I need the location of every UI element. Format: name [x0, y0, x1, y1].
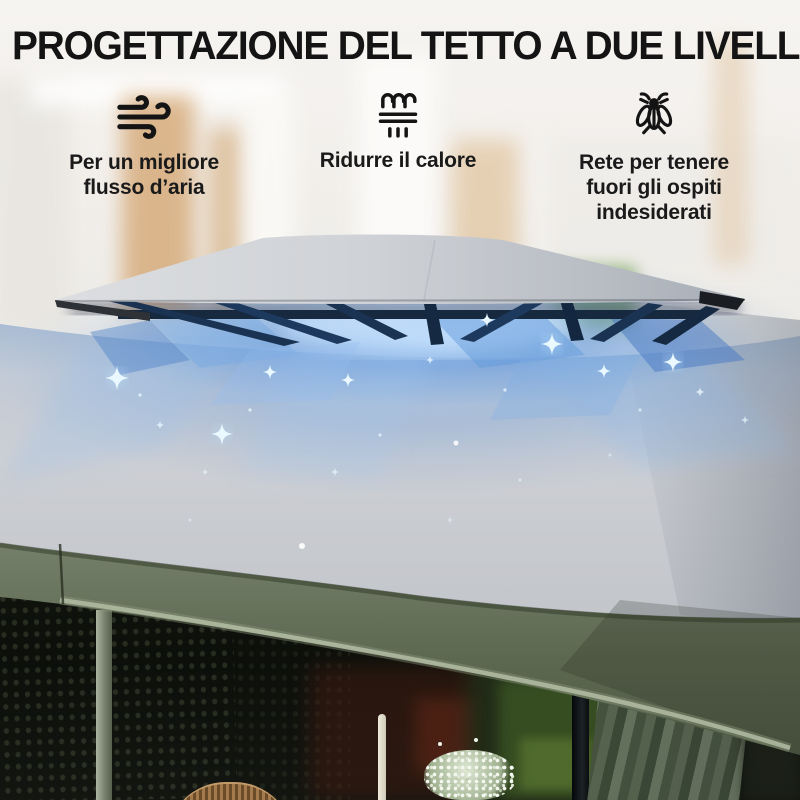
valance-graphic — [0, 530, 800, 800]
frame-bar — [118, 310, 700, 319]
product-image: PROGETTAZIONE DEL TETTO A DUE LIVELLI Pe… — [0, 0, 800, 800]
canopy-speck — [454, 441, 459, 446]
tier-edge — [55, 300, 745, 301]
